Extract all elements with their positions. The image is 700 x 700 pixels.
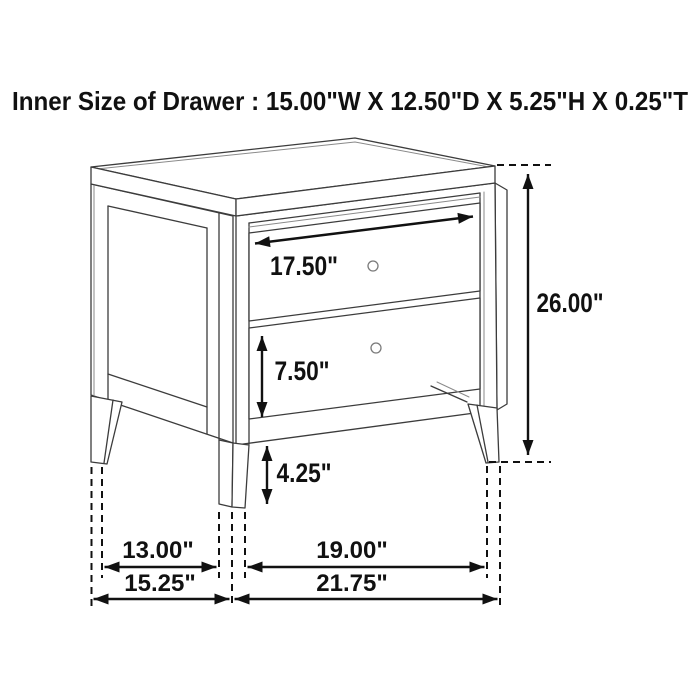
- nightstand-diagram-svg: Inner Size of Drawer : 15.00"W X 12.50"D…: [0, 0, 700, 700]
- label-leg-height: 4.25": [277, 458, 332, 488]
- front-left-leg: [219, 440, 249, 508]
- top-drawer-knob-icon: [368, 261, 378, 271]
- nightstand-drawing: [91, 138, 507, 508]
- back-left-leg: [91, 396, 122, 464]
- label-overall-width: 21.75": [316, 570, 387, 597]
- label-drawer-width: 17.50": [270, 251, 338, 281]
- front-face: [236, 183, 497, 445]
- label-drawer-height: 7.50": [275, 356, 330, 386]
- dimension-diagram: Inner Size of Drawer : 15.00"W X 12.50"D…: [0, 0, 700, 700]
- bottom-drawer-knob-icon: [371, 343, 381, 353]
- page-title: Inner Size of Drawer : 15.00"W X 12.50"D…: [12, 86, 688, 116]
- label-inner-width: 19.00": [316, 537, 387, 564]
- label-inner-depth: 13.00": [122, 537, 193, 564]
- label-overall-height: 26.00": [537, 288, 604, 318]
- label-overall-depth: 15.25": [124, 570, 195, 597]
